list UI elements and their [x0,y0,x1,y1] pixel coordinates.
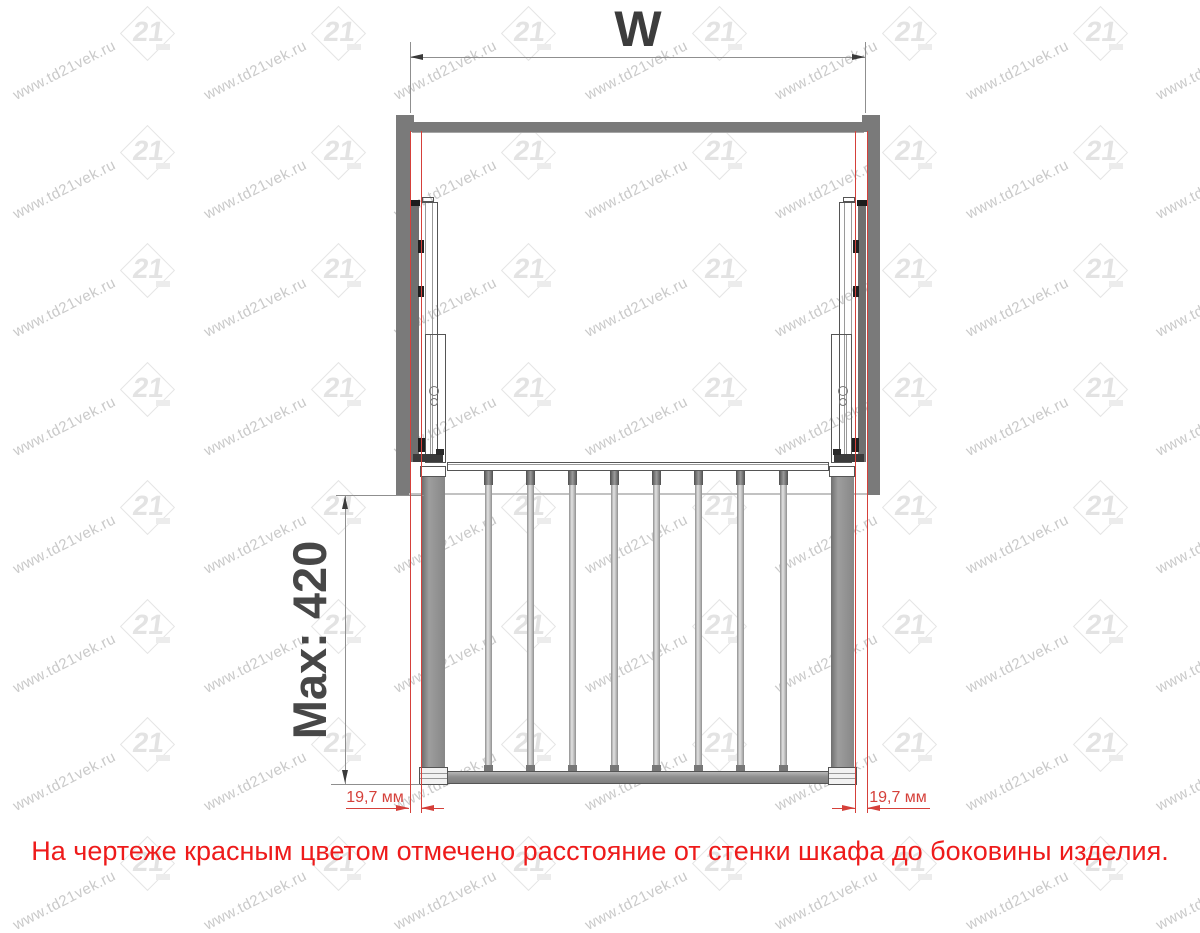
rail-top-tab [422,197,434,202]
wall-rabbet-left [410,115,415,122]
slide-rail-right [830,200,867,468]
post-cap [420,466,446,477]
bar-cap [652,471,661,485]
rail-bottom-connector [436,449,444,455]
slide-rail-left [410,200,447,468]
rail-top-tab [843,197,855,202]
bar-cap [484,471,493,485]
bar-cap [736,471,745,485]
post-cap [829,466,855,477]
dim-width-arrow-right [852,54,865,60]
bar-body [780,485,787,765]
post-foot [828,767,857,785]
dimension-width-label: W [560,0,716,58]
post-foot [419,767,448,785]
dim-width-extension-right [865,42,866,113]
top-panel-underline [412,132,864,134]
rail-roller [838,386,848,396]
rail-top-cap [857,200,867,206]
bar-body [695,485,702,765]
bar-body [737,485,744,765]
bar-body [527,485,534,765]
cabinet-wall-left [396,115,410,495]
cabinet-wall-right [867,115,881,495]
rail-top-cap [410,200,420,206]
bar-body [569,485,576,765]
dimension-side-gap-left-label: 19,7 мм [335,789,415,807]
post-body [422,477,445,768]
cabinet-drawing: W [0,0,1200,900]
dim-gap-left-arrow-out [421,805,434,811]
dim-width-extension-left [410,42,411,113]
post-body [831,477,854,768]
dim-max-extension-top [336,495,424,496]
side-post-right [828,466,857,785]
side-post-left [419,466,448,785]
bar-body [485,485,492,765]
crossbar-inner-line [448,464,828,465]
red-line-right-product-side [855,131,856,813]
cabinet-top-panel [404,122,872,132]
bar-body [653,485,660,765]
note-text: На чертеже красным цветом отмечено расст… [0,836,1200,867]
dim-max-arrow-bottom [342,770,348,783]
wall-rabbet-right [862,115,867,122]
rack-bottom-rail [447,771,829,784]
red-line-left-wall-face [410,131,411,813]
dimension-side-gap-right-label: 19,7 мм [858,789,938,807]
rail-roller [430,398,438,406]
rack-top-crossbar [447,462,829,472]
dimension-max-depth-label: Max: 420 [285,490,335,790]
dim-max-arrow-top [342,496,348,509]
bar-body [611,485,618,765]
red-line-right-wall-face [867,131,868,813]
dim-max-line [345,496,346,784]
drawing-canvas: 21www.td21vek.ru21www.td21vek.ru21www.td… [0,0,1200,900]
rail-bottom-connector [413,454,443,462]
bar-cap [526,471,535,485]
rail-bottom-connector [834,454,864,462]
bar-cap [610,471,619,485]
rail-roller [839,398,847,406]
dim-width-arrow-left [410,54,423,60]
rail-bottom-connector [833,449,841,455]
red-line-left-product-side [421,131,422,813]
bar-cap [694,471,703,485]
bar-cap [568,471,577,485]
dim-gap-right-arrow-in [842,805,855,811]
cabinet-bottom-edge [409,493,867,495]
dim-max-extension-bottom [331,784,420,785]
rail-roller [429,386,439,396]
bar-cap [779,471,788,485]
